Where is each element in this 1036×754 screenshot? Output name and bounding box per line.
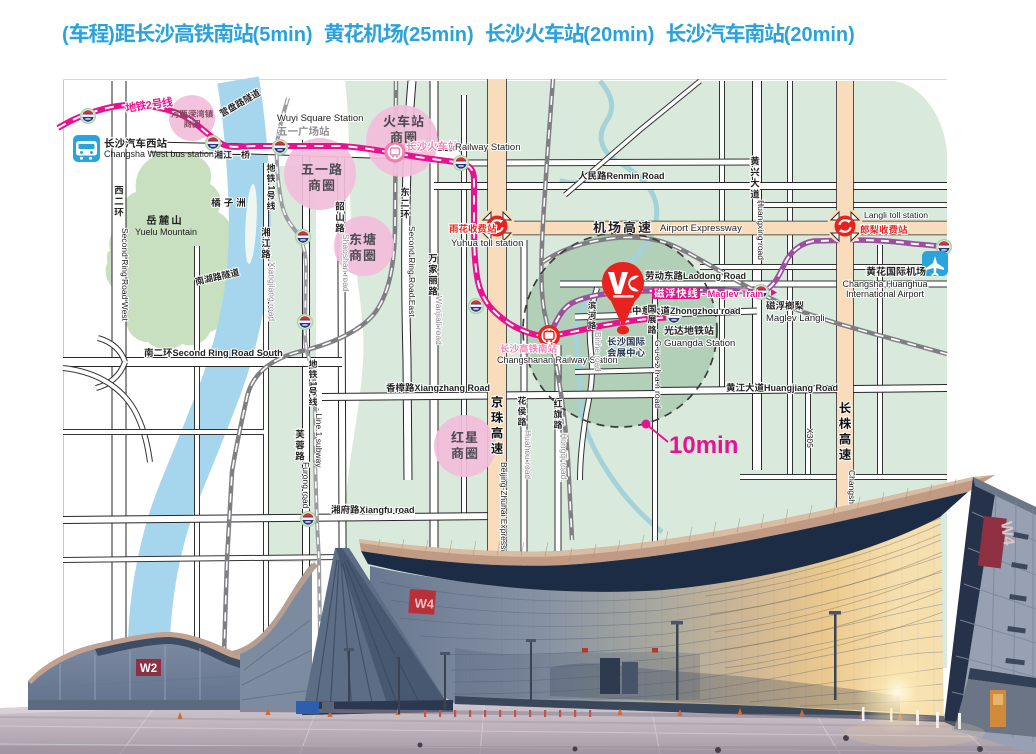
svg-text:Furong road: Furong road [301, 462, 311, 509]
svg-text:(5min): (5min) [253, 24, 313, 46]
svg-text:Xiangfu road: Xiangfu road [360, 505, 415, 515]
svg-text:Hongqi road.: Hongqi road. [559, 433, 569, 482]
svg-text:Changsha West bus station: Changsha West bus station [104, 149, 214, 159]
svg-text:Second Ring Road South: Second Ring Road South [173, 348, 284, 358]
svg-text:Laodong Road: Laodong Road [683, 271, 746, 281]
svg-text:Yuelu Mountain: Yuelu Mountain [135, 227, 197, 237]
svg-text:Wuyi Square Station: Wuyi Square Station [277, 113, 363, 124]
svg-text:Maglev Langli: Maglev Langli [766, 313, 825, 324]
svg-text:W4: W4 [997, 520, 1017, 546]
svg-text:(: ( [62, 24, 69, 46]
svg-text:Railway Station: Railway Station [455, 142, 520, 153]
svg-text:(20min): (20min) [583, 24, 654, 46]
svg-text:Zhongzhou road: Zhongzhou road [670, 306, 740, 316]
svg-text:Shaoshan road: Shaoshan road [341, 234, 351, 292]
svg-text:(25min): (25min) [403, 24, 474, 46]
svg-text:International Airport: International Airport [846, 289, 925, 299]
svg-text:1: 1 [309, 381, 319, 386]
svg-text:1: 1 [267, 185, 277, 190]
svg-text:W2: W2 [140, 663, 157, 675]
svg-text:Huangjiang Road: Huangjiang Road [764, 383, 838, 393]
svg-text:Guangda Station: Guangda Station [664, 338, 735, 349]
svg-text:Wanjiali road: Wanjiali road [434, 296, 444, 345]
svg-text:(20min): (20min) [784, 24, 855, 46]
svg-text:Xiangjiang road: Xiangjiang road [267, 262, 277, 321]
svg-text:Binhe road: Binhe road [593, 332, 602, 372]
svg-text:W4: W4 [414, 595, 435, 611]
svg-text:Renmin Road: Renmin Road [607, 171, 665, 181]
svg-text:Langli toll station: Langli toll station [864, 210, 928, 220]
svg-text:G u o z h a n road: G u o z h a n road [653, 340, 663, 408]
svg-text:Yuhua toll station: Yuhua toll station [451, 238, 523, 249]
svg-text:Xiangzhang Road: Xiangzhang Road [415, 383, 491, 393]
svg-text:Beijing-Zhuhai Expressway: Beijing-Zhuhai Expressway [499, 462, 509, 565]
svg-text:Airport Expressway: Airport Expressway [660, 223, 742, 234]
svg-text:Changsha Huanghua: Changsha Huanghua [842, 279, 927, 289]
svg-text:10min: 10min [669, 432, 738, 459]
svg-text:Huangxing road: Huangxing road [756, 200, 766, 260]
svg-text:): ) [108, 24, 115, 46]
svg-text:X305: X305 [805, 428, 815, 448]
svg-text:- Line 1 subway: - Line 1 subway [314, 408, 324, 468]
svg-text:Second Ring Road East: Second Ring Road East [407, 226, 417, 317]
svg-text:Second Ring Road West: Second Ring Road West [120, 228, 130, 322]
svg-text:- Maglev Train: - Maglev Train [702, 289, 764, 299]
svg-text:Huahou road: Huahou road [523, 430, 533, 479]
